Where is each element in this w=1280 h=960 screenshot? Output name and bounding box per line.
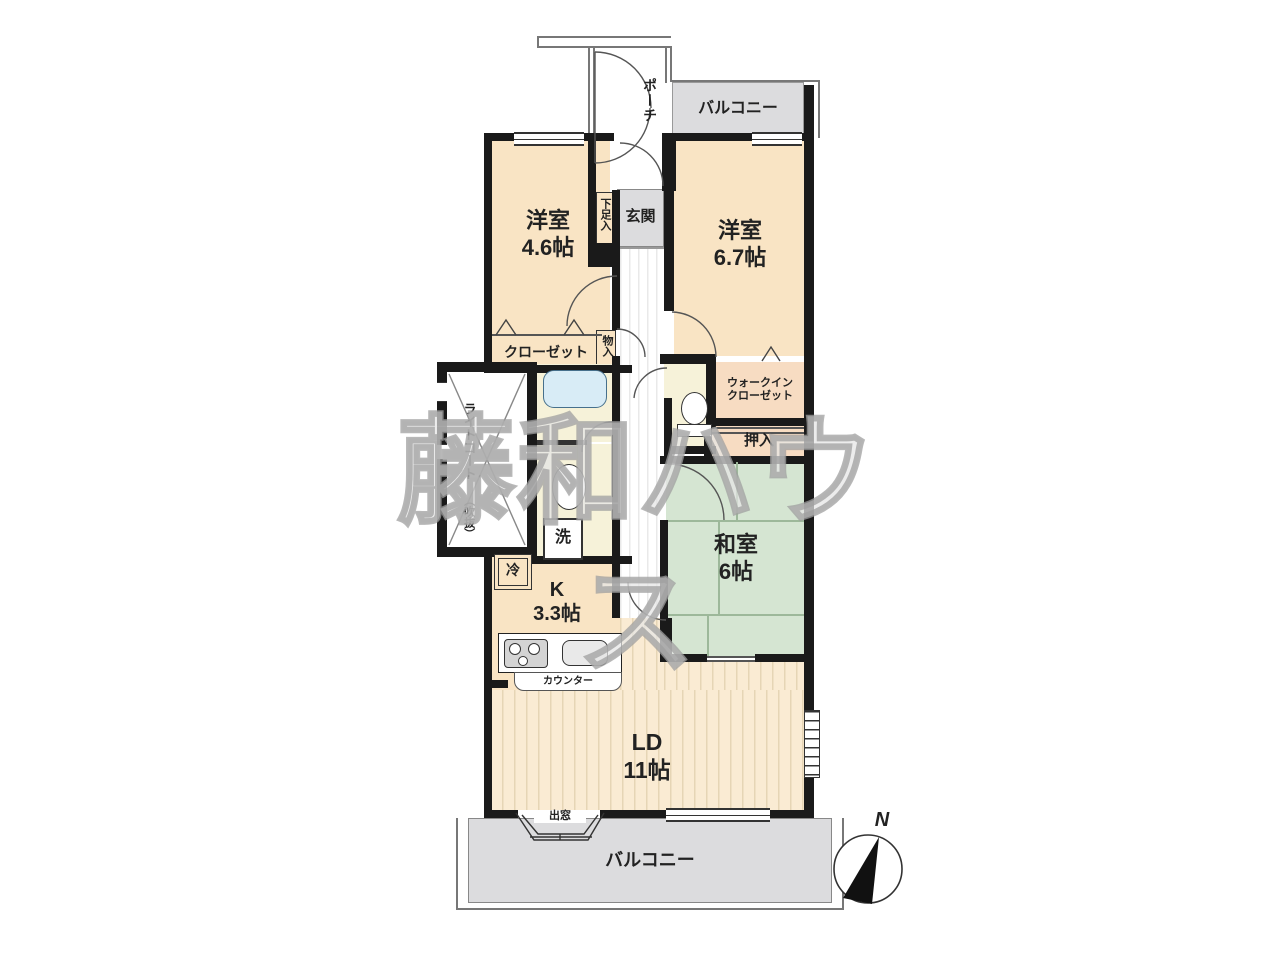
- refrigerator-label: 冷: [494, 562, 532, 579]
- wall: [600, 810, 666, 818]
- balcony-outline: [842, 818, 844, 910]
- outline-line: [537, 36, 671, 38]
- japanese-room-opening: [707, 660, 755, 662]
- window: [752, 132, 802, 146]
- stove-burner: [518, 656, 528, 666]
- balcony-top-label: バルコニー: [672, 99, 804, 119]
- tatami-line: [707, 614, 709, 656]
- closet-rail-line: [492, 334, 602, 336]
- storage-label: 物入: [599, 335, 615, 357]
- watermark-text: 藤和ハウス: [372, 398, 902, 548]
- outline-line: [818, 80, 820, 138]
- wall: [770, 810, 814, 818]
- outline-line: [670, 46, 672, 82]
- compass-north-label: N: [862, 808, 902, 832]
- balcony-outline: [456, 818, 458, 910]
- bay-window-label: 出窓: [534, 810, 586, 823]
- wall: [437, 362, 537, 372]
- western-room-large-label: 洋室 6.7帖: [676, 218, 804, 272]
- entrance-door-arc: [620, 143, 663, 186]
- porch-label: ポーチ: [640, 78, 660, 123]
- porch-wall-line: [665, 47, 667, 83]
- wall: [484, 556, 492, 690]
- entrance-step-line: [620, 247, 664, 249]
- compass-icon: [834, 835, 902, 904]
- balcony-bottom-label: バルコニー: [468, 850, 832, 872]
- window: [666, 808, 770, 822]
- porch-wall-line: [593, 47, 595, 137]
- living-dining-label: LD 11帖: [490, 728, 804, 784]
- closet-label: クローゼット: [490, 344, 602, 361]
- floor-plan-canvas: ポーチ バルコニー 玄関 下足入 洋室 4.6帖 洋室 6.7帖 クローゼット …: [0, 0, 1280, 960]
- outline-line: [537, 46, 671, 48]
- balcony-outline: [456, 908, 844, 910]
- stove-burner: [528, 643, 540, 655]
- window: [514, 132, 584, 146]
- wall: [484, 680, 508, 688]
- exterior-hatch-strip: [804, 710, 820, 778]
- stove-burner: [509, 643, 521, 655]
- porch-wall-line: [588, 47, 590, 137]
- wall: [755, 654, 806, 662]
- wall: [664, 141, 674, 311]
- wall: [484, 810, 518, 818]
- western-room-small-label: 洋室 4.6帖: [490, 208, 606, 262]
- entrance-label: 玄関: [617, 208, 664, 226]
- outline-line: [537, 36, 539, 47]
- japanese-room-opening: [707, 656, 755, 658]
